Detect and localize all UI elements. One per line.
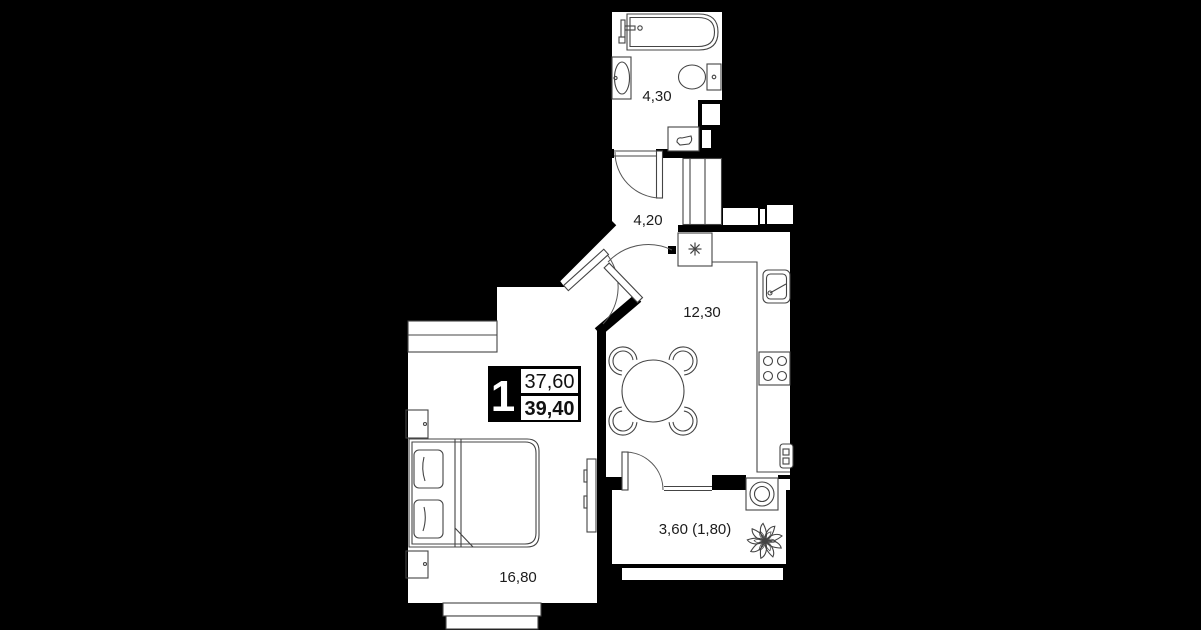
- room-label-kitchen: 12,30: [683, 304, 721, 321]
- vent-shaft-left: [723, 208, 758, 225]
- bathroom-door-sill: [614, 149, 658, 158]
- room-label-hallway: 4,20: [633, 212, 662, 229]
- badge-area-bottom: 39,40: [524, 398, 574, 420]
- room-label-balcony: 3,60 (1,80): [659, 521, 732, 538]
- area-badge: 1 37,60 39,40: [488, 366, 581, 422]
- vent-slit: [760, 209, 765, 224]
- badge-room-count: 1: [491, 372, 515, 421]
- washing-machine: [746, 478, 778, 510]
- water-heater: [668, 127, 699, 151]
- radiator-kitchen-icon: [780, 444, 793, 468]
- room-label-bedroom: 16,80: [499, 569, 537, 586]
- kitchen-shelf: [778, 479, 790, 490]
- gas-boiler: [678, 233, 712, 266]
- badge-area-top: 37,60: [524, 371, 574, 393]
- bedroom-window: [443, 603, 541, 629]
- room-label-bathroom: 4,30: [642, 88, 671, 105]
- bedroom-floor: [408, 287, 597, 603]
- floor-plan: 4,30 4,20 12,30 16,80 3,60 (1,80) 1 37,6…: [0, 0, 1201, 630]
- vent-shaft-right: [767, 205, 793, 224]
- balcony-ledge: [622, 568, 783, 580]
